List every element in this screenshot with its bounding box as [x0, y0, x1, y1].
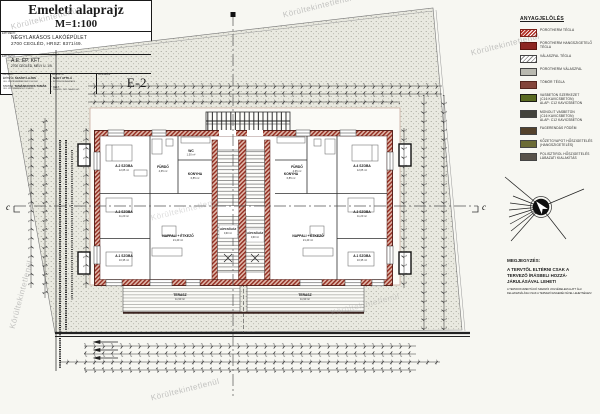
- room-area: 9,90 m²: [251, 236, 259, 239]
- swatch-porotherm-icon: [520, 29, 537, 37]
- room-area: 10,35 m²: [357, 258, 367, 262]
- room-label: A.2 SZOBA: [115, 164, 133, 168]
- legend-label: POROTHERM HANGSZIGETELŐ TÉGLA: [540, 41, 600, 49]
- legend-label: (HANGSZIGETELÉS): [540, 143, 593, 147]
- section-label-left: c: [6, 202, 10, 212]
- room-area: 11,90 m²: [175, 297, 185, 301]
- room-label: FÜRDŐ: [157, 164, 169, 169]
- legend-item: POROTHERM VÁLASZFAL: [520, 67, 600, 76]
- room-area: 6,85 m²: [287, 176, 296, 180]
- note-title: MEGJEGYZÉS:: [507, 258, 599, 263]
- legend-item: POLISZTIROL HŐSZIGETELÉS LÁBAZATI KIALAK…: [520, 152, 600, 161]
- room-label: WC: [188, 149, 194, 153]
- room-area: 1,50 m²: [187, 153, 196, 157]
- draughtsman-credential: ÉPÍTÉSZ MUNKATÁRS: [53, 81, 95, 84]
- room-label: KONYHA: [188, 172, 203, 176]
- section-label-right: c: [482, 202, 486, 212]
- note-small-line: FELHASZNÁLÁSA CSAK A TERVEZŐ ENGEDÉLYÉVE…: [507, 292, 599, 295]
- signature-table: TERVEZŐ: ÉPÍTÉSZ: SZANYI LAJOS OKL. ÉPÍT…: [1, 74, 151, 94]
- balcony: [206, 112, 290, 131]
- room-label: A.3 SZOBA: [115, 210, 133, 214]
- legend-label: POROTHERM TÉGLA: [540, 28, 574, 32]
- room-label: TERASZ: [298, 293, 311, 297]
- sheet-number: E-2: [127, 75, 147, 92]
- swatch-timber-floor-icon: [520, 127, 537, 135]
- stair-cores: [212, 140, 270, 280]
- role-label: ÉPÍTÉSZ:: [3, 77, 14, 80]
- room-label: A.4 SZOBA: [353, 164, 371, 168]
- room-area: 10,35 m²: [119, 258, 129, 262]
- legend-item: POROTHERM HANGSZIGETELŐ TÉGLA: [520, 41, 600, 50]
- sheet-caption: RAJZSZÁM:: [98, 74, 111, 77]
- swatch-reinforced-concrete-icon: [520, 94, 537, 102]
- legend-label: ALAP: C12 KAVICSBETON: [540, 101, 582, 105]
- legend-item: MONOLIT VASBETON (C16 KAVICSBETON) ALAP:…: [520, 110, 600, 122]
- legend-label: TÖMÖR TÉGLA: [540, 80, 565, 84]
- room-area: 12,65 m²: [357, 168, 367, 172]
- note-line: JÁRULÁSÁVAL LEHET!: [507, 279, 599, 285]
- materials-legend: ANYAGJELÖLÉS POROTHERM TÉGLA POROTHERM H…: [520, 16, 600, 165]
- legend-label: POROTHERM VÁLASZFAL: [540, 67, 582, 71]
- swatch-partition-brick-icon: [520, 55, 537, 63]
- room-label: A.1 SZOBA: [353, 254, 371, 258]
- note-small-line: A TERVDOKUMENTÁCIÓ SZERZŐI JOGVÉDELEM AL…: [507, 288, 599, 291]
- swatch-monolithic-concrete-icon: [520, 110, 537, 118]
- swatch-polystyrene-icon: [520, 153, 537, 161]
- room-label: NAPPALI + ÉTKEZŐ: [292, 233, 324, 238]
- note-block: MEGJEGYZÉS: A TERVTŐL ELTÉRNI CSAK A TER…: [507, 258, 599, 296]
- date-value: CEGLÉD, 2021. MÁJUS HÓ: [53, 89, 95, 92]
- north-arrow-icon: [505, 177, 584, 241]
- designer-credential: OKL. ÉPÍTŐMÉRNÖK T-13-8811: [3, 88, 49, 91]
- room-label: A.1 SZOBA: [115, 254, 133, 258]
- room-label: FÜRDŐ: [291, 164, 303, 169]
- designers-cell: TERVEZŐ: ÉPÍTÉSZ: SZANYI LAJOS OKL. ÉPÍT…: [1, 74, 51, 94]
- legend-item: VÁLASZFAL TÉGLA: [520, 54, 600, 63]
- room-area: 21,40 m²: [303, 238, 313, 242]
- designers-caption: TERVEZŐ:: [2, 74, 13, 77]
- designer-name: TAMÁSKOVICS TAMÁS: [14, 84, 46, 88]
- room-area: 11,20 m²: [119, 214, 129, 218]
- client-address: 2700 CEGLÉD, MÉLY U. 1/9.: [11, 64, 147, 68]
- draughtsman-caption: RAJZOLTA:: [52, 74, 64, 77]
- client-caption: ÉPÍTTETŐ:: [2, 55, 15, 58]
- project-row: ÉPÍTMÉNY: NÉGYLAKÁSOS LAKÓÉPÜLET 2700 CE…: [1, 32, 151, 55]
- room-area: 11,90 m²: [300, 297, 310, 301]
- legend-label: ALAP: C12 KAVICSBETON: [540, 118, 582, 122]
- legend-item: POROTHERM TÉGLA: [520, 28, 600, 37]
- legend-label: LÁBAZATI KIALAKÍTÁS: [540, 156, 590, 160]
- project-caption: ÉPÍTMÉNY:: [2, 32, 16, 35]
- swatch-solid-brick-icon: [520, 81, 537, 89]
- swatch-mineral-wool-icon: [520, 140, 537, 148]
- legend-label: VÁLASZFAL TÉGLA: [540, 54, 571, 58]
- room-label: A.3 SZOBA: [353, 210, 371, 214]
- legend-item: VASBETON SZERKEZET (C16 KAVICSBETON) ALA…: [520, 93, 600, 105]
- room-area: 4,65 m²: [293, 169, 302, 173]
- project-address: 2700 CEGLÉD, HRSZ: 8371/49.: [11, 41, 147, 46]
- legend-item: TÖMÖR TÉGLA: [520, 80, 600, 89]
- designer-name: SZANYI LAJOS: [15, 76, 36, 80]
- swatch-porotherm-partition-icon: [520, 68, 537, 76]
- swatch-soundproof-brick-icon: [520, 42, 537, 50]
- drawing-page: { "watermark": { "text": "Körültekintetl…: [0, 0, 600, 414]
- room-area: 12,65 m²: [119, 168, 129, 172]
- draughtsman-cell: RAJZOLTA: NAGY ATTILA ÉPÍTÉSZ MUNKATÁRS …: [51, 74, 97, 94]
- client-row: ÉPÍTTETŐ: A.E. ÉP. KFT. 2700 CEGLÉD, MÉL…: [1, 55, 151, 74]
- room-label: NAPPALI + ÉTKEZŐ: [162, 233, 194, 238]
- legend-title: ANYAGJELÖLÉS: [520, 16, 600, 22]
- room-area: 11,20 m²: [357, 214, 367, 218]
- legend-item: FAGERENDÁS FÖDÉM: [520, 126, 600, 135]
- legend-item: KŐZETGYAPOT HŐSZIGETELÉS (HANGSZIGETELÉS…: [520, 139, 600, 148]
- room-label: TERASZ: [173, 293, 186, 297]
- sheet-number-cell: RAJZSZÁM: E-2: [97, 74, 151, 94]
- room-area: 6,85 m²: [191, 176, 200, 180]
- room-area: 4,65 m²: [159, 169, 168, 173]
- legend-label: FAGERENDÁS FÖDÉM: [540, 126, 577, 130]
- room-area: 21,40 m²: [173, 238, 183, 242]
- room-area: 9,90 m²: [224, 232, 232, 235]
